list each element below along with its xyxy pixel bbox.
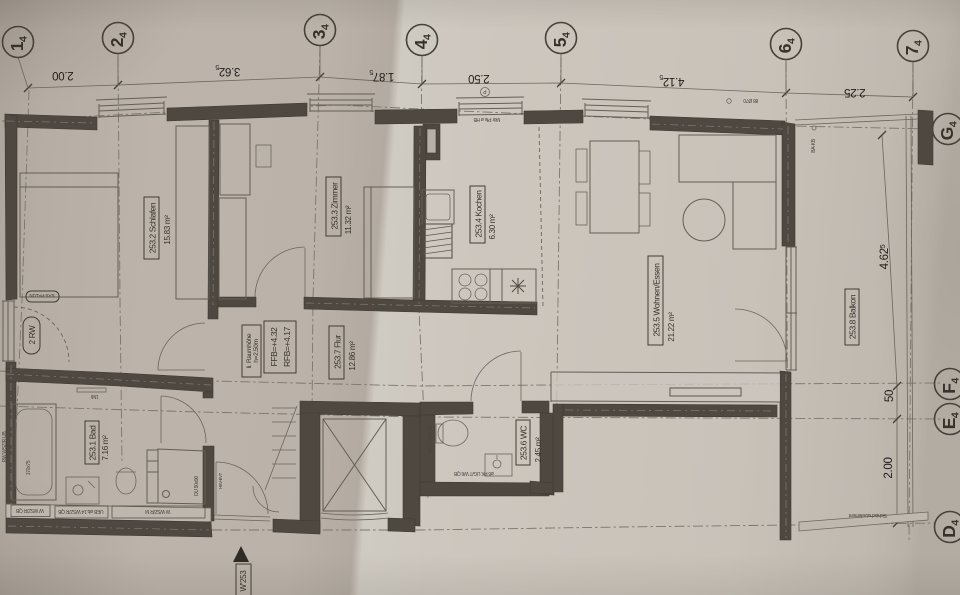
svg-text:253.5 Wohnen/Essen: 253.5 Wohnen/Essen — [652, 263, 662, 337]
svg-text:253.6 WC: 253.6 WC — [519, 426, 529, 461]
svg-text:15.83 m²: 15.83 m² — [163, 215, 172, 245]
svg-text:Sichtschutzelement: Sichtschutzelement — [848, 512, 887, 518]
svg-text:21.22 m²: 21.22 m² — [667, 312, 676, 342]
svg-text:6.30 m²: 6.30 m² — [488, 214, 497, 240]
svg-text:RW WSZ/R UB: RW WSZ/R UB — [2, 431, 8, 463]
svg-text:24: 24 — [107, 32, 130, 47]
svg-text:54: 54 — [550, 32, 573, 47]
svg-text:2.50: 2.50 — [468, 72, 489, 84]
svg-text:HKV-EVT: HKV-EVT — [218, 472, 223, 489]
svg-text:253.3 Zimmer: 253.3 Zimmer — [330, 182, 340, 230]
svg-text:UEB øb.14 WSZ/R QB: UEB øb.14 WSZ/R QB — [57, 508, 103, 514]
svg-text:2.00: 2.00 — [883, 457, 895, 478]
svg-text:2.45 m²: 2.45 m² — [534, 437, 543, 463]
svg-text:E4: E4 — [939, 412, 960, 429]
svg-text:FFB=+4.32: FFB=+4.32 — [269, 327, 279, 367]
svg-text:1.875: 1.875 — [369, 68, 394, 82]
svg-text:253.8 Balkon: 253.8 Balkon — [848, 294, 858, 339]
svg-text:253.4 Kochen: 253.4 Kochen — [474, 190, 484, 238]
svg-text:3.625: 3.625 — [215, 63, 240, 77]
svg-text:W WSZ/R QB: W WSZ/R QB — [15, 507, 44, 513]
svg-text:34: 34 — [309, 24, 332, 39]
svg-text:64: 64 — [775, 38, 798, 53]
svg-text:ø6 PK UG/T W6 QB: ø6 PK UG/T W6 QB — [453, 470, 494, 476]
svg-text:74: 74 — [902, 40, 925, 55]
svg-text:P: P — [483, 88, 487, 94]
svg-text:14: 14 — [7, 36, 30, 51]
svg-text:253.2 Schlafen: 253.2 Schlafen — [148, 202, 158, 253]
svg-text:BA-KB: BA-KB — [811, 138, 817, 152]
svg-text:W WSZ/R M: W WSZ/R M — [145, 508, 170, 514]
svg-text:W'253: W'253 — [239, 570, 248, 592]
svg-text:SAS-PALUN: SAS-PALUN — [29, 293, 54, 298]
svg-text:253.1 Bad: 253.1 Bad — [88, 425, 98, 460]
svg-text:12.86 m²: 12.86 m² — [348, 341, 357, 371]
svg-text:7.16 m²: 7.16 m² — [101, 435, 110, 461]
svg-text:44: 44 — [411, 34, 434, 49]
svg-text:50: 50 — [884, 390, 896, 402]
svg-text:D4: D4 — [939, 520, 960, 538]
svg-text:RFB=+4.17: RFB=+4.17 — [282, 326, 292, 367]
svg-text:li. Raumhöhe: li. Raumhöhe — [246, 333, 253, 368]
svg-text:G4: G4 — [937, 121, 960, 140]
svg-text:88 Ø70: 88 Ø70 — [743, 97, 758, 103]
svg-text:WC 6-Dx/K M: WC 6-Dx/K M — [428, 426, 434, 453]
svg-text:h=2.50m: h=2.50m — [253, 339, 260, 362]
svg-text:170x75: 170x75 — [26, 460, 32, 475]
svg-text:F4: F4 — [939, 378, 960, 394]
svg-text:253.7 Flur: 253.7 Flur — [333, 335, 343, 369]
svg-text:2.00: 2.00 — [52, 69, 73, 81]
svg-text:Mör Pfe ø HB: Mör Pfe ø HB — [473, 116, 501, 122]
svg-text:2 RW: 2 RW — [28, 325, 37, 344]
svg-text:1Mi: 1Mi — [91, 393, 98, 399]
svg-text:4.125: 4.125 — [659, 73, 684, 87]
svg-text:2.25: 2.25 — [844, 86, 865, 98]
svg-text:11.32 m²: 11.32 m² — [344, 205, 353, 234]
svg-text:DU 90x90: DU 90x90 — [194, 476, 200, 496]
